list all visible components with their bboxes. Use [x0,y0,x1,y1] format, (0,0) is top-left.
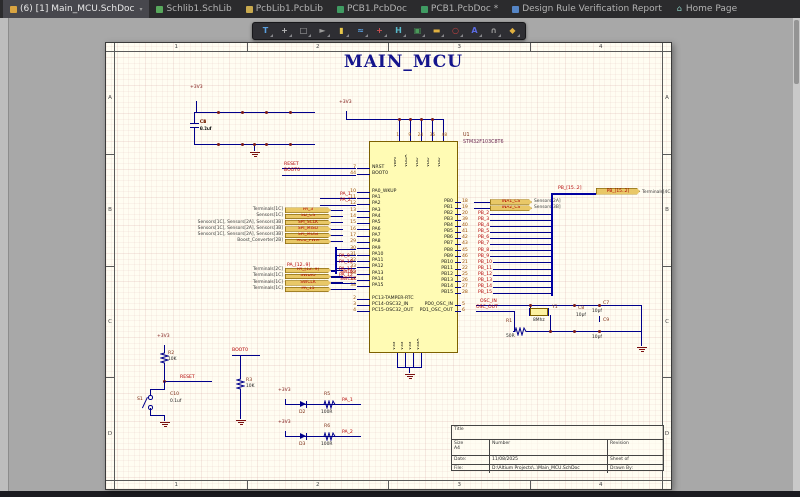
wire [331,235,343,236]
ruler-label: 3 [389,43,531,51]
wire [331,229,343,230]
component-ref: R5 [324,393,330,398]
sheet-entry-refs: Terminals[1C] [253,208,283,212]
document-tab-label: (6) [1] Main_MCU.SchDoc [20,4,134,14]
pin-number: 43 [461,242,474,247]
wire[interactable] [405,353,406,367]
net-label[interactable]: PB_2 [478,212,489,217]
net-label[interactable]: PB_13 [478,279,492,284]
pin-name: VDD [416,143,427,167]
sheet-entry-refs: Sensors[3B] [534,206,561,210]
junction [241,111,244,114]
ruler-label: C [663,267,671,379]
port[interactable]: PA_15 [285,287,331,292]
resistor-symbol[interactable] [322,400,338,409]
pin-name: VSSA [417,326,425,350]
vertical-scrollbar[interactable] [793,18,800,491]
ruler-label: B [663,155,671,267]
net-row: PB_15 [478,290,551,296]
toolbar-icon[interactable]: + [371,25,388,37]
net-label[interactable]: OSC_IN [480,300,497,305]
port-row: Terminals[1C] PA_15 [126,286,343,292]
wire [490,238,551,239]
pin-number: 17 [343,234,357,239]
component-ref: D3 [299,443,305,448]
toolbar-icon[interactable]: H [390,25,407,37]
mcu-bottom-pin-names: VSSVSSVSSVSSA [393,326,425,350]
port[interactable]: PA_3 [285,207,331,212]
pin-wire [357,261,370,262]
date-label: Date: [452,456,490,464]
document-tab[interactable]: ⌂ Home Page [669,0,744,18]
pin-name: PB4 [370,224,455,229]
pin-wire [357,305,370,306]
junction [598,330,601,333]
component-ref[interactable]: C7 [603,302,609,307]
wire[interactable] [550,315,551,331]
net-label[interactable]: PA_2 [340,199,351,204]
resistor-symbol[interactable] [322,432,338,441]
wire[interactable] [346,119,444,120]
ruler-label: D [663,378,671,489]
wire [490,244,551,245]
component-value: 100R [321,443,332,447]
pin-wire [357,192,370,193]
pin-wire [357,198,370,199]
sheet-entry-refs: Sensors[1C], Sensors[2A], Sensors[3B] [198,221,283,225]
component-value: 0.1uf [170,400,181,404]
pin-number: 13 [343,209,357,214]
mcu-part-number[interactable]: STM32F103C8T6 [463,141,504,146]
pin-name: PB9 [370,255,455,260]
pin-number: 27 [461,285,474,290]
ruler-label: 2 [248,481,390,489]
port[interactable]: SPI_MISO [285,226,331,231]
pin-number: 14 [343,215,357,220]
document-tab-label: Schlib1.SchLib [166,4,231,14]
port[interactable]: SD_CS [285,214,331,219]
wire[interactable] [164,381,212,382]
pin-name: BOOT0 [370,172,388,177]
sheet-entry-refs: Sensors[2A] [534,200,561,204]
wire[interactable] [164,365,165,381]
pin-name: PB2 [370,212,455,217]
pin-number: 4 [343,309,357,314]
ruler-label: 1 [106,43,248,51]
wire[interactable] [599,316,600,322]
power-symbol-3v3[interactable]: +3V3 [190,86,204,91]
power-net-label: +3V3 [190,85,203,90]
pin-number: 1 [388,132,400,137]
wire [331,289,343,290]
component-ref: D2 [299,411,305,416]
pin-name: VDDA [405,143,416,167]
resistor-symbol[interactable] [513,327,529,336]
toolbar-icon[interactable]: ▣ [409,25,426,37]
pin-number: 39 [461,218,474,223]
port[interactable]: SWDIO [285,274,331,279]
pin-number: 26 [461,279,474,284]
pin-wire [357,311,370,312]
crystal-symbol[interactable] [530,308,548,316]
ruler-label: 3 [389,481,531,489]
pin-number: 36 [424,132,436,137]
document-ic2on [10,6,17,13]
pin-wire [357,242,370,243]
power-symbol-3v3[interactable]: +3V3 [278,389,292,394]
size-value[interactable]: A4 [454,446,460,451]
junction [420,118,423,121]
port[interactable]: INA2_CS [490,205,532,210]
wire [493,269,551,270]
pin-number: 5 [461,303,474,308]
pin-wire [357,248,370,249]
left-panel-strip[interactable] [0,18,9,491]
pin-wire [357,236,370,237]
wire [493,287,551,288]
wire [493,262,551,263]
wire [331,222,343,223]
file-value[interactable]: D:\Altium Projects\..\Main_MCU.SchDoc [490,465,608,473]
junction [409,118,412,121]
power-symbol-3v3[interactable]: +3V3 [157,335,171,340]
component-ref: C6 [200,121,206,126]
component-ref[interactable]: R3 [246,379,252,384]
title-block: Title Size A4 Number Revision Date: 11/0… [451,425,664,471]
wire[interactable] [476,305,641,306]
pin-wire [357,274,370,275]
wire [493,293,551,294]
wire [490,250,551,251]
power-net-label: +3V3 [157,334,170,339]
sheet-ruler-right: ABCD [662,43,671,489]
document-ic2on [421,6,428,13]
component-value: 0.1uf [200,128,211,132]
wire[interactable] [641,305,642,346]
toolbar-icon[interactable]: ► [314,25,331,37]
pin-name: PB0 [370,200,455,205]
component-value: 8Mhz [533,319,545,323]
sheet-entry-refs: Sensors[1C] [256,214,283,218]
component-ref: R6 [324,425,330,430]
gnd-symbol[interactable] [636,346,648,352]
mcu-pin-row[interactable]: PD1_OSC_OUT 6 [370,308,474,314]
gnd-symbol[interactable] [159,421,171,427]
port[interactable]: SWCLK [285,280,331,285]
document-ic2on [156,6,163,13]
sheet-entry-refs: Terminals[4C] [642,190,672,195]
junction [265,143,268,146]
port[interactable]: PA_[12..9] [285,268,331,273]
port-label: PB_[15..2] [596,188,640,195]
port[interactable]: INA1_CS [490,199,532,204]
number-label: Number [492,441,510,446]
pin-number: 48 [436,132,448,137]
document-tab-label: Home Page [686,4,737,14]
file-label: File: [452,465,490,473]
ruler-label: 2 [248,43,390,51]
window-bottom-edge [0,491,800,497]
sheet-ruler-bottom: 1234 [106,480,671,489]
net-label[interactable]: PB_8 [478,249,489,254]
gnd-symbol[interactable] [404,373,416,379]
net-label[interactable]: PB_7 [478,242,489,247]
wire[interactable] [443,119,444,141]
mcu-designator[interactable]: U1 [463,134,470,139]
wire [331,282,343,283]
junction [289,143,292,146]
pin-wire [357,211,370,212]
sheet-entry-refs: Terminals[2C] [253,268,283,272]
wire [493,281,551,282]
pin-name: VDD [438,143,449,167]
mcu-top-pin-names: VBATVDDAVDDVDDVDD [394,143,449,167]
wire[interactable] [232,355,260,356]
switch-symbol[interactable] [146,395,156,409]
pin-number: 28 [461,291,474,296]
ruler-label: B [106,155,114,267]
bus-net-label[interactable]: PB_[15..2] [558,187,582,192]
pin-number: 6 [461,309,474,314]
pin-number: 19 [461,206,474,211]
ruler-label: D [106,378,114,489]
net-label[interactable]: PB_12 [478,273,492,278]
wire [474,208,490,209]
wire[interactable] [421,119,422,141]
pin-wire [357,255,370,256]
power-symbol-3v3[interactable]: +3V3 [339,101,353,106]
wire[interactable] [346,111,347,119]
pin-name: PB13 [370,279,455,284]
pin-number: 18 [461,200,474,205]
wire [331,216,343,217]
ruler-label: C [106,267,114,379]
component-ref[interactable]: C10 [170,393,179,398]
ruler-label: 4 [531,481,672,489]
component-value: 10pf [576,314,586,318]
toolbar-icon[interactable]: ▮ [333,25,350,37]
document-tab[interactable]: (6) [1] Main_MCU.SchDoc [3,0,149,18]
bus[interactable] [551,193,553,296]
power-symbol-3v3[interactable]: +3V3 [278,421,292,426]
decap-bank: C1 2.2uf C2 0.1uf C3 0.1uf C4 0.1uf [188,112,328,144]
led-symbol[interactable] [298,432,311,441]
wire [490,256,551,257]
pin-name: PC13-TAMPER-RTC [370,297,414,302]
pin-wire [357,299,370,300]
bus[interactable] [551,193,596,195]
port[interactable]: SPI_SCLK [285,220,331,225]
document-ic2on [246,6,253,13]
net-label[interactable]: PB_9 [478,255,489,260]
pin-number: 21 [461,261,474,266]
ruler-label: 1 [106,481,248,489]
port[interactable]: SPI_MOSI [285,233,331,238]
wire[interactable] [150,415,165,416]
gnd-symbol[interactable] [235,419,247,425]
pin-name: PD1_OSC_OUT [370,309,455,314]
junction [253,143,256,146]
pin-number: 38 [343,284,357,289]
toolbar-icon[interactable]: □ [295,25,312,37]
net-label[interactable]: OSC_OUT [476,306,498,311]
pin-number: 2 [343,297,357,302]
document-tab[interactable]: PcbLib1.PcbLib [239,0,330,18]
pin-name: VSS [401,326,409,350]
document-ic2on [512,6,519,13]
net-label[interactable]: RESET [180,376,195,381]
toolbar-icon[interactable]: ◆ [504,25,521,37]
sheet-entry-refs: Terminals[1C] [253,274,283,278]
schematic-sheet[interactable]: 1234 1234 ABCD ABCD MAIN_MCU +3V3 C1 2.2… [105,42,672,490]
component-ref[interactable]: C8 [578,307,584,312]
port[interactable]: PB_[15..2] [596,188,640,195]
wire [474,202,490,203]
net-label[interactable]: PA_1 [340,193,351,198]
wire[interactable] [399,119,400,141]
document-tab[interactable]: PCB1.PcbDoc [330,0,414,18]
wire[interactable] [528,331,599,332]
document-tab[interactable]: Schlib1.SchLib [149,0,238,18]
pin-name: PB12 [370,273,455,278]
wire[interactable] [240,355,241,377]
schematic-title[interactable]: MAIN_MCU [136,52,671,72]
net-label[interactable]: RESET [284,163,299,168]
junction [598,304,601,307]
pin-wire [357,168,370,169]
net-label[interactable]: BOOT0 [284,169,300,174]
document-tab[interactable]: PCB1.PcbDoc * [414,0,505,18]
wire[interactable] [150,408,151,415]
pin-name: PB11 [370,267,455,272]
wire[interactable] [164,381,165,389]
junction [265,111,268,114]
component-value: 10K [246,385,254,389]
net-label[interactable]: PB_14 [478,285,492,290]
toolbar-icon[interactable]: ≈ [352,25,369,37]
mcu-pin-row[interactable]: 44 BOOT0 [343,171,463,177]
scrollbar-thumb[interactable] [794,20,799,84]
component-value: 50R [506,335,515,339]
sheet-entry-refs: Terminals[1C] [253,281,283,285]
pin-number: 24 [412,132,424,137]
gnd-symbol[interactable] [249,151,261,157]
active-bar-toolbar: T+□►▮≈+H▣▬○A∩◆ [252,22,526,40]
junction [289,111,292,114]
pin-wire [357,267,370,268]
document-tab-label: PCB1.PcbDoc * [431,4,498,14]
sheet-entry-refs: Sensors[1C], Sensors[2A], Sensors[3B] [198,227,283,231]
net-label[interactable]: PB_11 [478,267,492,272]
toolbar-icon[interactable]: ○ [447,25,464,37]
pin-number: 46 [461,255,474,260]
pin-number: 9 [400,132,412,137]
pin-number: 25 [461,273,474,278]
junction [573,304,576,307]
net-label[interactable]: PA_1 [342,399,353,404]
wire [490,226,551,227]
wire[interactable] [413,353,414,367]
toolbar-icon[interactable]: A [466,25,483,37]
pin-name: VSS [393,326,401,350]
pin-number: 22 [461,267,474,272]
sheet-entry-refs: Terminals[1C] [253,287,283,291]
net-label[interactable]: PB_3 [478,218,489,223]
pin-name: PD0_OSC_IN [370,303,455,308]
document-ic2on: ⌂ [676,6,683,13]
component-value: 10K [168,358,176,362]
pin-name: VBAT [394,143,405,167]
wire[interactable] [421,353,422,367]
toolbar-icon[interactable]: T [257,25,274,37]
pin-number: 20 [461,212,474,217]
net-label[interactable]: BOOT0 [232,349,248,354]
mcu-pin-row[interactable]: PB15 28 [370,290,474,296]
wire [490,220,551,221]
wire[interactable] [282,175,356,176]
date-value[interactable]: 11/08/2025 [490,456,608,464]
pin-name: PB15 [370,291,455,296]
pin-name: PB10 [370,261,455,266]
pin-name: PB1 [370,206,455,211]
revision-label: Revision [610,441,629,446]
wire[interactable] [599,331,641,332]
junction [398,118,401,121]
component-ref[interactable]: C9 [603,319,609,324]
pin-number: 15 [343,221,357,226]
component-ref[interactable]: R2 [168,352,174,357]
net-label[interactable]: PB_10 [478,261,492,266]
pin-name: VSS [409,326,417,350]
document-tab-label: PcbLib1.PcbLib [256,4,323,14]
wire[interactable] [320,205,356,206]
net-label[interactable]: PA_2 [342,431,353,436]
wire[interactable] [150,389,165,390]
document-tab[interactable]: Design Rule Verification Report [505,0,669,18]
ruler-label: 4 [531,43,672,51]
pin-wire [357,280,370,281]
power-net-label: +3V3 [278,420,291,425]
component-value: 10pf [592,310,602,314]
sheet-ruler-top: 1234 [106,43,671,52]
wire[interactable] [240,391,241,419]
resistor-symbol[interactable] [236,377,245,391]
led-circuit: +3V3 D2 R5 100R PA_1 [278,389,478,421]
junction [241,143,244,146]
wire[interactable] [432,119,433,141]
toolbar-icon[interactable]: ▬ [428,25,445,37]
junction [529,304,532,307]
wire [490,232,551,233]
component-ref[interactable]: Y1 [552,306,558,311]
sheet-label: Sheet of [608,456,663,464]
junction [217,111,220,114]
pin-name: PA0_WKUP [370,190,396,195]
wire[interactable] [397,353,398,367]
led-symbol[interactable] [298,400,311,409]
titleblock-title-label: Title [454,427,464,432]
wire[interactable] [476,311,514,312]
port[interactable]: MCU_PWM [285,239,331,244]
component-ref[interactable]: S1 [137,398,143,403]
wire[interactable] [196,101,197,112]
wire[interactable] [410,119,411,141]
toolbar-icon[interactable]: ∩ [485,25,502,37]
toolbar-icon[interactable]: + [276,25,293,37]
capacitor[interactable]: C6 0.1uf [188,112,204,144]
component-ref[interactable]: R1 [506,320,512,325]
net-label[interactable]: PB_15 [478,291,492,296]
